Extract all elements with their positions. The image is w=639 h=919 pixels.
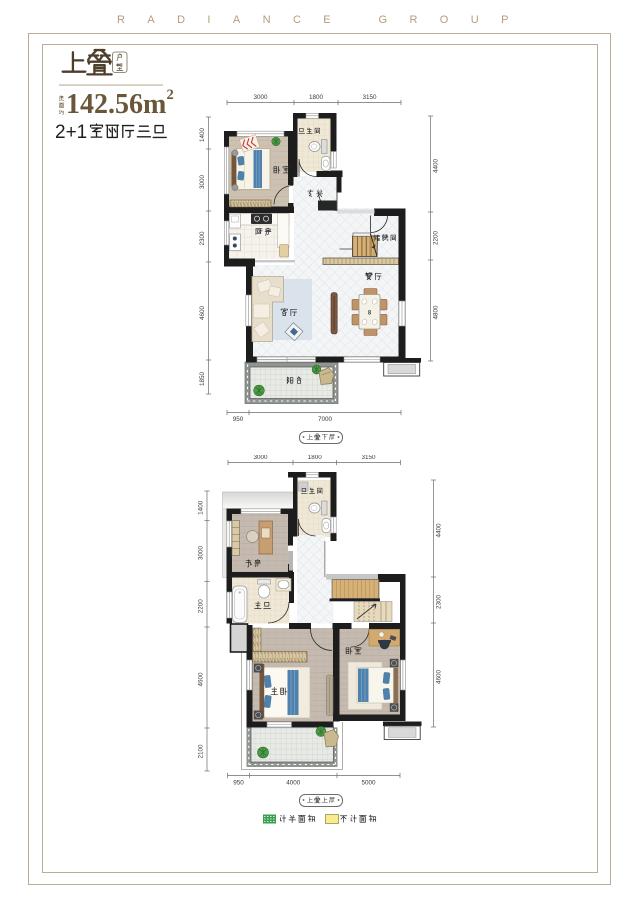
svg-text:2+1: 2+1 <box>55 122 87 143</box>
svg-text:3000: 3000 <box>199 175 206 190</box>
svg-text:5000: 5000 <box>361 780 376 787</box>
svg-text:7000: 7000 <box>318 416 333 423</box>
svg-text:2200: 2200 <box>433 231 440 246</box>
svg-text:4800: 4800 <box>433 305 440 320</box>
svg-text:950: 950 <box>233 416 244 423</box>
svg-text:2200: 2200 <box>198 599 205 614</box>
svg-text:4400: 4400 <box>436 523 443 538</box>
svg-text:3150: 3150 <box>361 455 376 461</box>
svg-text:950: 950 <box>233 780 244 787</box>
svg-text:1800: 1800 <box>308 455 323 461</box>
svg-text:1400: 1400 <box>198 500 205 515</box>
svg-text:4400: 4400 <box>433 159 440 174</box>
svg-text:3150: 3150 <box>362 94 377 101</box>
svg-text:4000: 4000 <box>286 780 301 787</box>
svg-text:2: 2 <box>167 87 174 103</box>
svg-text:4600: 4600 <box>436 670 443 685</box>
svg-text:3000: 3000 <box>198 546 205 561</box>
svg-text:4600: 4600 <box>198 672 205 687</box>
svg-text:1400: 1400 <box>199 128 206 143</box>
svg-text:3000: 3000 <box>253 455 268 461</box>
svg-text:3000: 3000 <box>253 94 268 101</box>
svg-text:4600: 4600 <box>199 306 206 321</box>
svg-text:1850: 1850 <box>199 372 206 387</box>
svg-text:2300: 2300 <box>199 231 206 246</box>
svg-text:2300: 2300 <box>436 595 443 610</box>
svg-text:142.56m: 142.56m <box>66 89 166 120</box>
svg-text:1800: 1800 <box>309 94 324 101</box>
svg-text:2100: 2100 <box>198 744 205 759</box>
